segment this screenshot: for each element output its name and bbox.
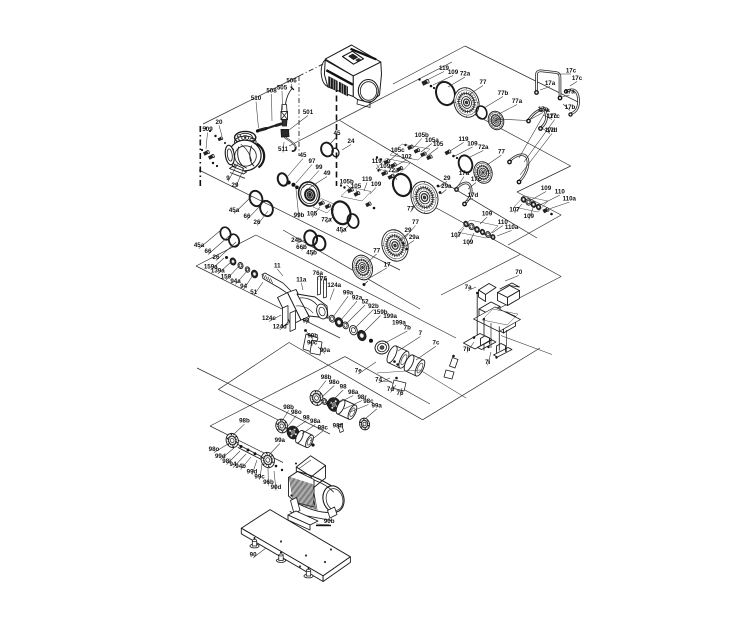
svg-text:11: 11: [274, 263, 281, 270]
svg-text:99: 99: [316, 164, 323, 171]
svg-text:74: 74: [375, 376, 382, 383]
svg-text:24b: 24b: [291, 237, 302, 244]
svg-text:110: 110: [555, 189, 566, 196]
svg-text:109: 109: [482, 211, 493, 218]
svg-text:77a: 77a: [512, 98, 523, 105]
svg-text:505: 505: [277, 85, 288, 92]
svg-text:17: 17: [384, 261, 391, 268]
svg-text:26: 26: [254, 219, 261, 226]
svg-text:17d: 17d: [468, 192, 479, 199]
svg-text:77: 77: [412, 219, 419, 226]
svg-text:124a: 124a: [327, 282, 341, 289]
svg-text:99a: 99a: [372, 403, 383, 410]
svg-text:17d: 17d: [547, 127, 558, 134]
svg-text:17a: 17a: [545, 80, 556, 87]
svg-text:77b: 77b: [498, 90, 509, 97]
svg-text:109: 109: [371, 181, 382, 188]
svg-text:45a: 45a: [229, 207, 240, 214]
svg-text:109: 109: [467, 141, 478, 148]
svg-text:29a: 29a: [441, 183, 452, 190]
svg-text:72a: 72a: [478, 144, 489, 151]
svg-text:77: 77: [480, 79, 487, 86]
svg-text:124d: 124d: [273, 323, 287, 330]
svg-text:511: 511: [278, 146, 289, 153]
svg-text:508: 508: [266, 88, 277, 95]
svg-text:102: 102: [401, 154, 412, 161]
svg-text:49: 49: [324, 170, 331, 177]
svg-text:77: 77: [373, 247, 380, 254]
svg-text:7i: 7i: [485, 359, 490, 366]
svg-text:109: 109: [541, 185, 552, 192]
svg-text:66: 66: [205, 248, 212, 255]
svg-text:29a: 29a: [409, 234, 420, 241]
svg-text:98o: 98o: [329, 379, 340, 386]
svg-text:509: 509: [202, 126, 213, 133]
svg-text:94b: 94b: [235, 463, 246, 470]
svg-text:17b: 17b: [565, 104, 576, 111]
svg-text:51: 51: [250, 289, 257, 296]
svg-text:98c: 98c: [318, 425, 329, 432]
svg-text:7d: 7d: [387, 386, 394, 393]
svg-text:90c: 90c: [307, 340, 318, 347]
svg-text:17a: 17a: [564, 89, 575, 96]
svg-text:66: 66: [244, 213, 251, 220]
svg-text:94: 94: [240, 283, 247, 290]
svg-text:110a: 110a: [505, 224, 519, 231]
svg-text:99a: 99a: [275, 437, 286, 444]
svg-text:105: 105: [307, 211, 318, 218]
svg-text:98d: 98d: [333, 423, 344, 430]
svg-text:17c: 17c: [566, 68, 577, 75]
svg-text:17c: 17c: [471, 176, 482, 183]
svg-text:72a: 72a: [388, 167, 399, 174]
svg-text:98: 98: [303, 318, 310, 325]
svg-text:7h: 7h: [463, 346, 470, 353]
svg-text:109: 109: [448, 69, 459, 76]
svg-text:110a: 110a: [563, 196, 577, 203]
svg-text:99b: 99b: [294, 212, 305, 219]
svg-text:107: 107: [509, 207, 520, 214]
svg-text:24: 24: [348, 138, 355, 145]
svg-text:7: 7: [419, 330, 423, 337]
svg-text:107: 107: [451, 232, 462, 239]
svg-text:77: 77: [407, 206, 414, 213]
svg-text:77: 77: [498, 149, 505, 156]
svg-text:45a: 45a: [336, 227, 347, 234]
svg-text:17c: 17c: [572, 75, 583, 82]
svg-text:90: 90: [250, 551, 257, 558]
svg-text:98: 98: [340, 384, 347, 391]
svg-text:98b: 98b: [239, 418, 250, 425]
svg-text:510: 510: [251, 95, 262, 102]
svg-text:72a: 72a: [321, 217, 332, 224]
svg-text:76: 76: [397, 390, 404, 397]
svg-text:506: 506: [286, 78, 297, 85]
svg-text:124c: 124c: [262, 315, 276, 322]
svg-text:29: 29: [405, 227, 412, 234]
svg-text:45b: 45b: [306, 250, 317, 257]
svg-text:199a: 199a: [392, 319, 406, 326]
svg-text:45a: 45a: [194, 242, 205, 249]
svg-text:90d: 90d: [271, 484, 282, 491]
svg-text:17c: 17c: [550, 113, 561, 120]
svg-text:7e: 7e: [355, 368, 362, 375]
svg-text:45: 45: [334, 130, 341, 137]
svg-text:17a: 17a: [459, 170, 470, 177]
svg-text:90a: 90a: [320, 347, 331, 354]
svg-text:90b: 90b: [324, 518, 335, 525]
svg-text:501: 501: [303, 109, 314, 116]
svg-text:105: 105: [433, 141, 444, 148]
svg-text:98o: 98o: [209, 446, 220, 453]
svg-text:109: 109: [524, 213, 535, 220]
svg-text:72a: 72a: [460, 71, 471, 78]
svg-text:105: 105: [351, 183, 362, 190]
svg-text:29: 29: [444, 175, 451, 182]
svg-text:9: 9: [226, 175, 230, 182]
svg-text:26: 26: [213, 254, 220, 261]
svg-text:45: 45: [300, 152, 307, 159]
svg-text:11a: 11a: [296, 276, 307, 283]
svg-text:98o: 98o: [291, 409, 302, 416]
svg-text:7c: 7c: [433, 340, 440, 347]
svg-text:109: 109: [463, 239, 474, 246]
svg-text:29: 29: [232, 182, 239, 189]
svg-text:7a: 7a: [465, 284, 472, 291]
svg-text:20: 20: [216, 119, 223, 126]
svg-text:70: 70: [515, 269, 522, 276]
